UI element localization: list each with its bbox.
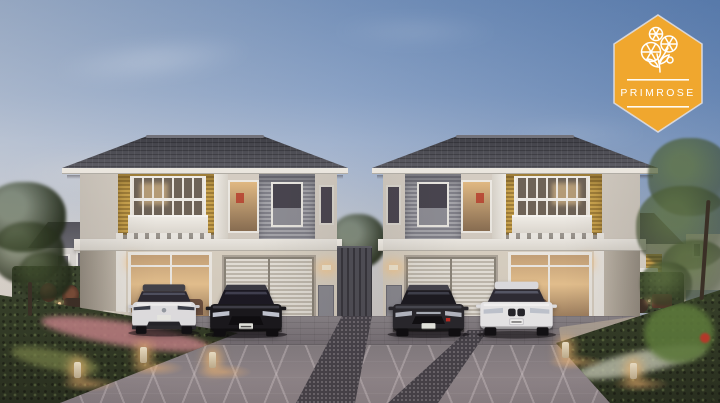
- tree-left-canopy: [18, 252, 72, 300]
- badge-divider-top: [627, 79, 689, 81]
- primrose-logo-badge: PRIMROSE: [613, 14, 703, 133]
- light-pool: [196, 364, 252, 380]
- hip-roof: [372, 135, 658, 168]
- tree-left-trunk: [28, 282, 32, 316]
- bollard-light: [630, 363, 637, 379]
- black-sedan: [202, 283, 290, 339]
- red-flower-accent: [700, 333, 710, 343]
- bollard-light: [562, 342, 569, 358]
- center-divider-fence: [337, 246, 372, 320]
- cloud: [16, 20, 290, 100]
- bollard-light: [140, 347, 147, 363]
- hexagon-badge-shape: [613, 14, 703, 133]
- badge-divider-bottom: [627, 106, 689, 108]
- light-pool: [60, 376, 118, 392]
- light-pool: [128, 360, 184, 376]
- light-pool: [612, 376, 670, 392]
- badge-label: PRIMROSE: [613, 87, 703, 99]
- yellow-green-shrubs: [9, 341, 101, 379]
- white-crossover-suv: [126, 281, 202, 338]
- white-luxury-sedan: [474, 280, 559, 339]
- tree-right-canopy: [640, 262, 692, 306]
- graphite-sedan: [385, 283, 472, 339]
- bollard-light: [209, 352, 216, 368]
- roof-ridge: [146, 135, 264, 138]
- light-pool: [548, 354, 604, 370]
- roof-ridge: [456, 135, 574, 138]
- cloud: [300, 12, 530, 50]
- bollard-light: [74, 362, 81, 378]
- scene-canvas: PRIMROSE: [0, 0, 720, 403]
- hip-roof: [62, 135, 348, 168]
